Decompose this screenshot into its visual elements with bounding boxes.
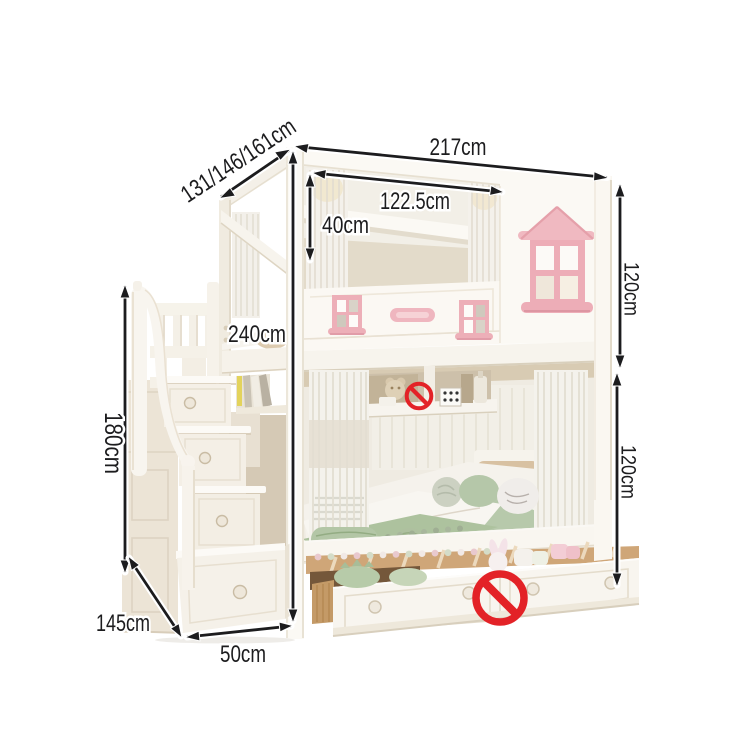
svg-text:240cm: 240cm xyxy=(228,321,286,348)
svg-text:120cm: 120cm xyxy=(620,262,644,316)
svg-text:50cm: 50cm xyxy=(220,641,266,668)
svg-text:217cm: 217cm xyxy=(430,134,487,161)
svg-text:40cm: 40cm xyxy=(322,212,369,239)
svg-text:122.5cm: 122.5cm xyxy=(380,188,450,215)
svg-text:145cm: 145cm xyxy=(96,610,150,637)
svg-text:120cm: 120cm xyxy=(617,445,641,499)
svg-text:180cm: 180cm xyxy=(99,412,127,474)
